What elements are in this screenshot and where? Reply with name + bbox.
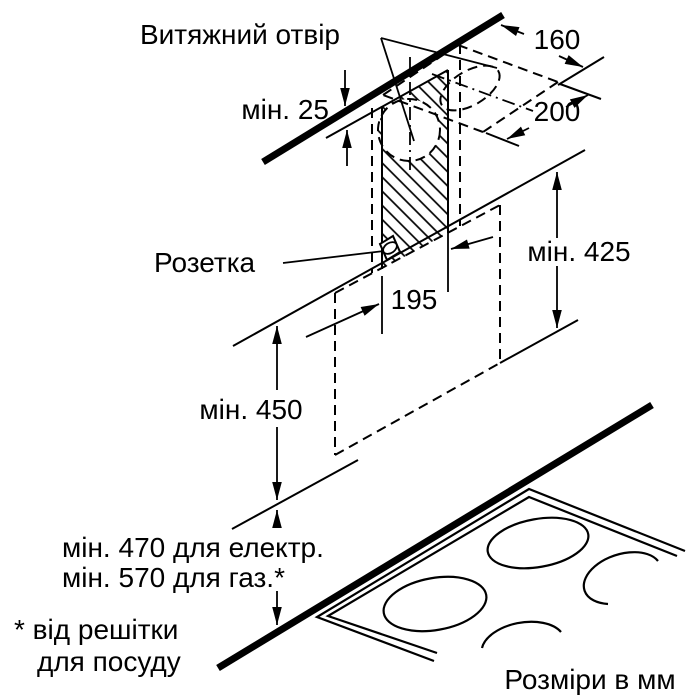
dim200-label: 200	[534, 96, 581, 127]
units-note: Розміри в мм	[504, 664, 675, 695]
exhaust-opening-label: Витяжний отвір	[140, 19, 340, 50]
footnote-line1: * від решітки	[14, 614, 178, 645]
dim450-label: мін. 450	[199, 394, 302, 425]
hood-bottom-reference-line	[500, 320, 578, 363]
dim425-group: мін. 425	[527, 172, 630, 328]
extension-line-160	[558, 57, 604, 85]
dim160-arrow-right	[559, 56, 583, 67]
burner-back	[484, 511, 593, 576]
dim200-arrow-left	[507, 128, 529, 139]
electric-clearance-label: мін. 470 для електр.	[62, 532, 324, 563]
dim195-arrow-right	[451, 237, 493, 249]
socket-label: Розетка	[154, 247, 256, 278]
wall-exhaust-hole	[378, 99, 440, 161]
dim425-label: мін. 425	[527, 236, 630, 267]
dim450-group: мін. 450	[199, 326, 302, 500]
dim195-label: 195	[391, 284, 438, 315]
dim195-arrow-left	[306, 304, 379, 337]
wall-duct-group	[372, 44, 460, 273]
gas-clearance-label: мін. 570 для газ.*	[62, 562, 285, 593]
diagram-canvas: мін. 25 160 200 Витяжний отвір	[0, 0, 700, 700]
dim160-arrow-left	[501, 25, 524, 34]
burner-left	[379, 569, 490, 638]
installation-diagram: мін. 25 160 200 Витяжний отвір	[0, 0, 700, 700]
opening-dimensions-group: 160 200	[486, 24, 604, 146]
reference-line-grate	[232, 460, 358, 529]
gap-dimension-label: мін. 25	[241, 94, 329, 125]
socket-group: Розетка	[154, 236, 400, 278]
burner-right-arc	[584, 552, 658, 604]
cooktop-frame-inner	[328, 497, 677, 653]
socket-leader	[283, 251, 384, 263]
hood-bottom-edge	[335, 363, 500, 455]
dim160-label: 160	[534, 24, 581, 55]
footnote-line2: для посуду	[37, 646, 181, 677]
clearance-group: мін. 470 для електр. мін. 570 для газ.* …	[14, 460, 358, 677]
burner-front-arc	[482, 622, 561, 648]
